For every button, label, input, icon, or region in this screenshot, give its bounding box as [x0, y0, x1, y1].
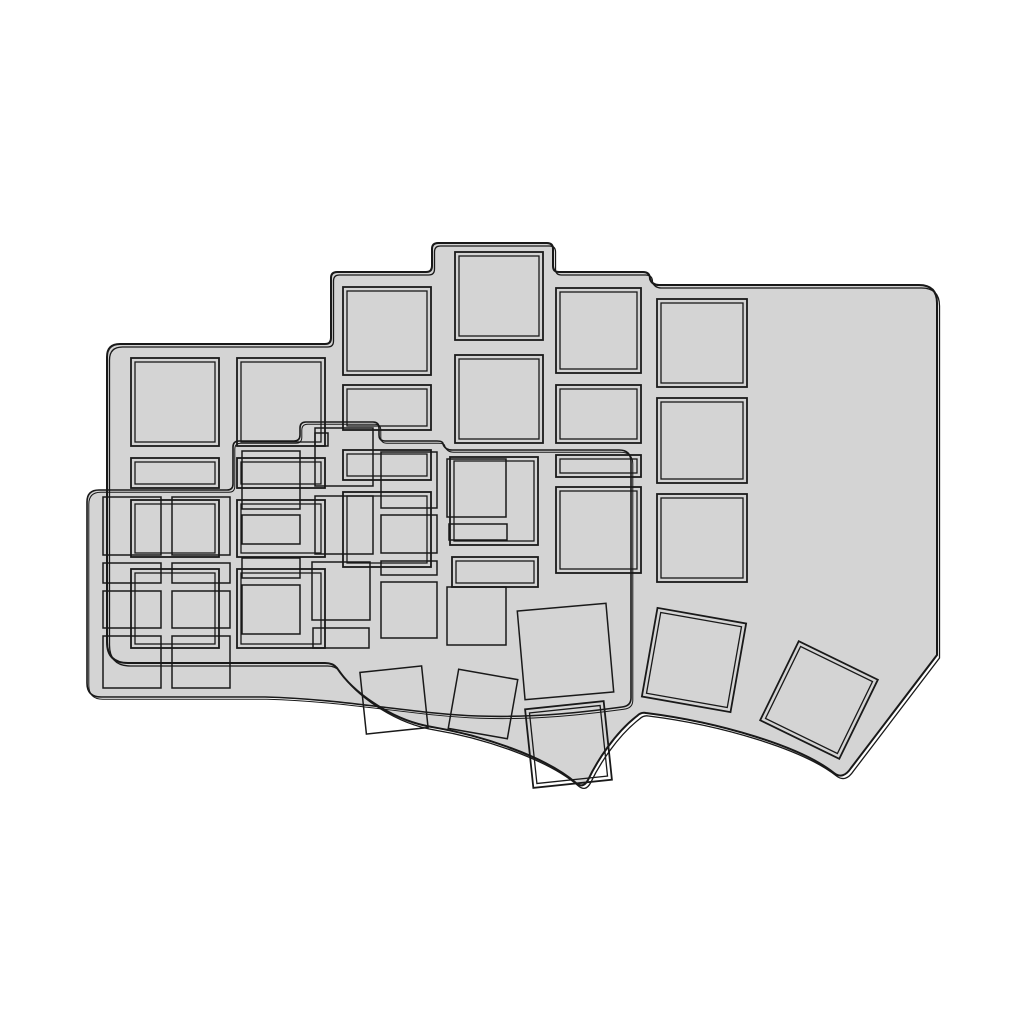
render-viewport — [0, 0, 1024, 1024]
keyboard-plates-drawing — [0, 0, 1024, 1024]
